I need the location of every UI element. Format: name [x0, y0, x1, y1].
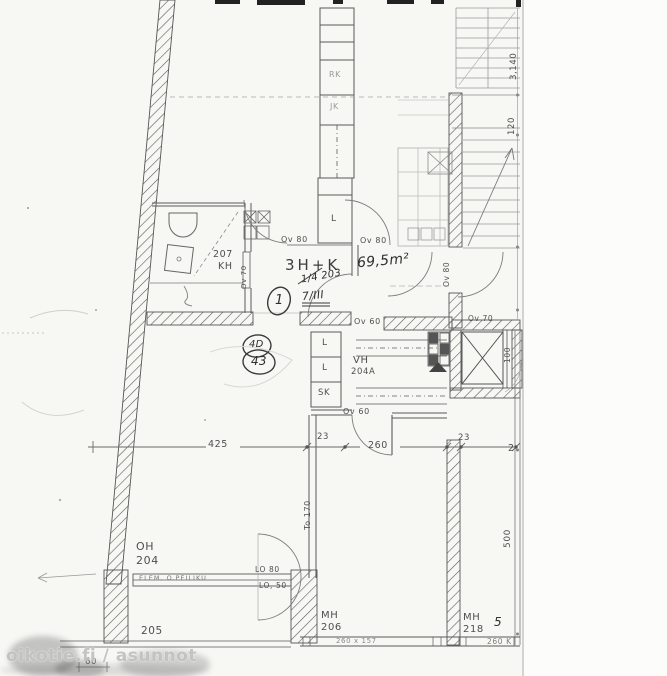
dim-bedroom-width: 260 — [368, 441, 388, 451]
dim-bedroom-depth: 500 — [504, 529, 513, 548]
door-ov80-entry-label: Ov 80 — [443, 262, 451, 287]
door-ov60-vh-label: Ov 60 — [343, 408, 370, 416]
door-ov80-b-label: Ov 80 — [360, 237, 387, 245]
room-balcony-number: 205 — [141, 626, 163, 637]
room-walkin-number: 204A — [351, 368, 375, 377]
dim-shaft: 100 — [504, 347, 512, 363]
balcony-door-label: LO 80 — [255, 566, 280, 574]
room-bathroom-abbr: KH — [218, 262, 233, 272]
dim-door-opening: To 170 — [304, 500, 312, 530]
door-ov70-bath-label: Ov 70 — [241, 265, 248, 289]
dim-partial: 2 — [508, 444, 515, 454]
washer-boxes — [244, 211, 270, 239]
closet-1-label: L — [322, 339, 328, 348]
room-walkin-abbr: VH — [353, 356, 369, 366]
room-living-number: 204 — [136, 555, 159, 566]
toilet-fixture — [169, 213, 197, 237]
room-living-abbr: OH — [136, 541, 154, 552]
door-ov80-a-label: Ov 80 — [281, 236, 308, 244]
closet-2-label: L — [322, 364, 328, 373]
elevator-shaft — [462, 330, 507, 388]
dim-living-width: 425 — [208, 440, 228, 450]
door-ov70-hall-label: Ov 70 — [468, 315, 493, 323]
hand-stamp-top: 4D — [249, 340, 264, 350]
room-bedroom1-abbr: MH — [321, 611, 338, 621]
scanned-floorplan-page: 3H+K 69,5m² 1 1/4 203 7/III 4D 43 207 KH… — [0, 0, 667, 676]
fridge-label: RK — [329, 71, 341, 79]
element-label: ELEM. O.PEILIKU — [139, 575, 207, 582]
hand-stamp-bottom: 43 — [251, 355, 267, 367]
dim-stair-b: 120 — [508, 117, 517, 135]
dim-stair-a: 3,140 — [510, 53, 519, 80]
dim-wall-b: 23 — [458, 434, 470, 443]
dim-wall-a: 23 — [317, 433, 329, 442]
window-dim-right: 260 K — [487, 638, 512, 646]
room-bedroom2-number: 218 — [463, 625, 484, 635]
hatched-walls — [104, 0, 522, 645]
room-bedroom1-number: 206 — [321, 623, 342, 633]
freezer-label: JK — [330, 103, 339, 111]
oikotie-watermark: oikotie.fi / asunnot — [6, 646, 197, 666]
vent-grid — [428, 332, 450, 372]
room-bedroom2-abbr: MH — [463, 613, 480, 623]
unit-number: 1 — [275, 294, 284, 307]
cleaning-closet-label: SK — [318, 389, 330, 398]
balcony-window-label: LO, 50 — [259, 582, 287, 590]
sink-fixture — [165, 245, 194, 274]
room-bathroom-number: 207 — [213, 250, 233, 260]
door-ov60-kitchen-label: Ov 60 — [354, 318, 381, 326]
hall-closet-label: L — [331, 215, 337, 224]
room-bedroom2-hand-mark: 5 — [494, 616, 502, 628]
window-dim-left: 260 x 157 — [336, 638, 377, 645]
hand-note-lower: 7/III — [301, 289, 324, 302]
